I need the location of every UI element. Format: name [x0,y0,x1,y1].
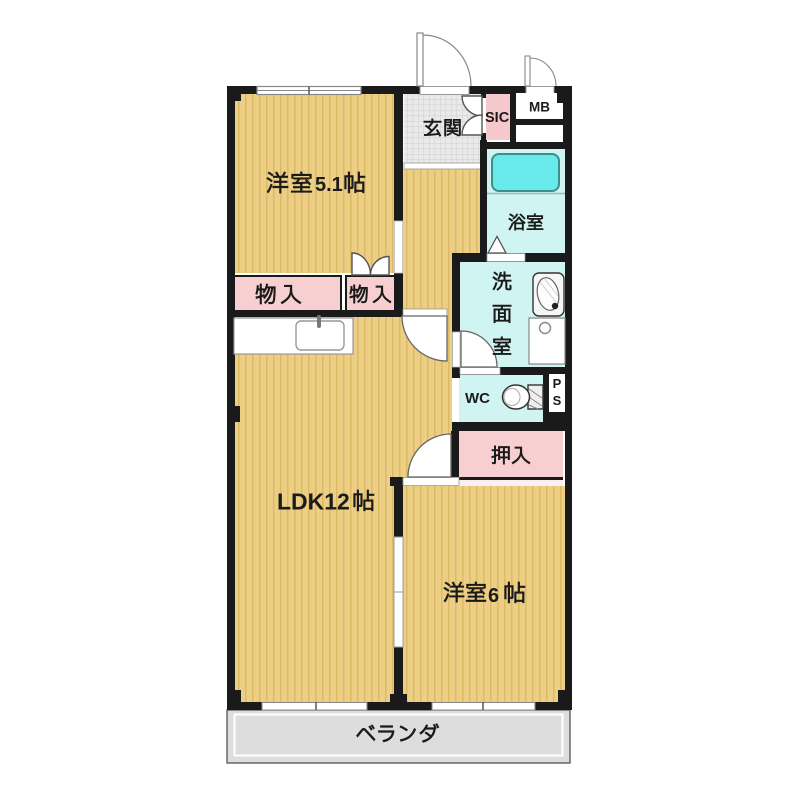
svg-text:WC: WC [465,390,490,407]
svg-text:S: S [553,393,562,408]
svg-text:MB: MB [529,100,550,115]
svg-text:5.1: 5.1 [315,174,343,196]
svg-text:P: P [553,376,562,391]
svg-text:6: 6 [488,585,499,607]
svg-text:LDK12: LDK12 [277,489,350,515]
svg-text:SIC: SIC [485,110,510,126]
